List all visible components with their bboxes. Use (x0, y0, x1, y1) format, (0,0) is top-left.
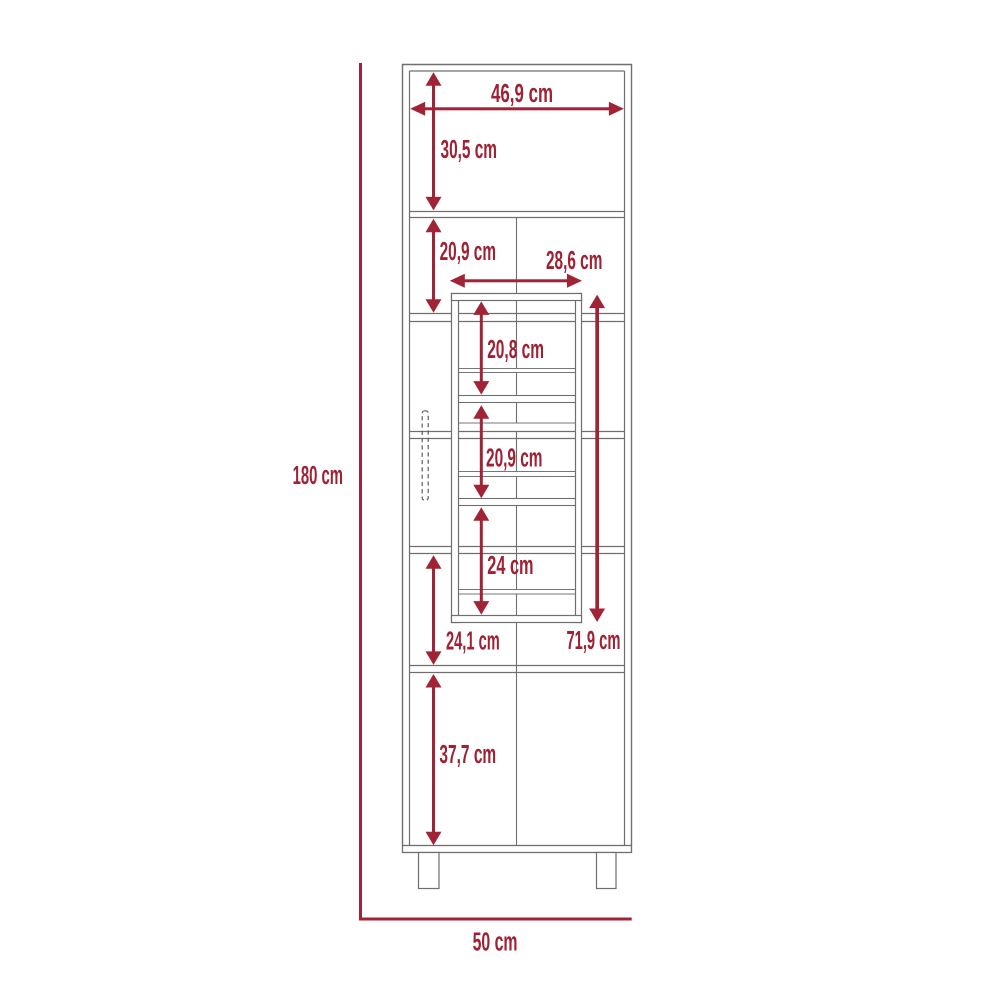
svg-text:180 cm: 180 cm (293, 462, 343, 490)
svg-text:71,9 cm: 71,9 cm (567, 627, 621, 655)
svg-text:20,9 cm: 20,9 cm (486, 445, 543, 473)
svg-text:24,1 cm: 24,1 cm (446, 628, 500, 656)
svg-text:20,9 cm: 20,9 cm (440, 238, 496, 266)
svg-text:50 cm: 50 cm (473, 929, 518, 957)
svg-text:20,8 cm: 20,8 cm (487, 336, 544, 364)
svg-text:30,5 cm: 30,5 cm (441, 136, 498, 164)
svg-text:46,9 cm: 46,9 cm (491, 80, 553, 108)
svg-text:37,7 cm: 37,7 cm (439, 741, 496, 769)
svg-text:24 cm: 24 cm (487, 552, 533, 580)
svg-text:28,6 cm: 28,6 cm (546, 247, 602, 275)
